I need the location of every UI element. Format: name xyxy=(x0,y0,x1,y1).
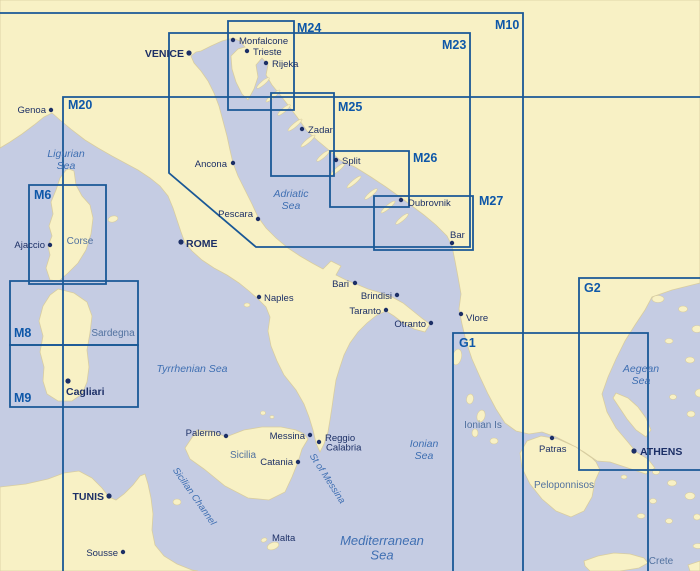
city-dot xyxy=(550,436,554,440)
city-athens: ATHENS xyxy=(631,446,682,458)
sea-label-text: Aegean xyxy=(622,363,659,375)
city-dot xyxy=(334,158,338,162)
city-dot xyxy=(296,460,300,464)
island xyxy=(652,296,664,303)
city-label: TUNIS xyxy=(73,491,105,503)
region-label-sardegna: Sardegna xyxy=(91,328,135,339)
island xyxy=(694,514,700,520)
sea-label-text: Ligurian xyxy=(47,148,85,160)
region-label-peloponnisos: Peloponnisos xyxy=(534,480,594,491)
city-label: Patras xyxy=(539,444,567,455)
sea-label-text: Mediterranean xyxy=(340,533,424,548)
city-dot xyxy=(308,433,312,437)
city-dot xyxy=(48,243,52,247)
city-label: Split xyxy=(342,156,361,167)
island xyxy=(637,514,645,519)
city-label: Calabria xyxy=(326,443,362,454)
city-label: Trieste xyxy=(253,47,282,58)
city-label: Pescara xyxy=(218,209,254,220)
sea-label-text: Sea xyxy=(632,375,651,387)
city-dot xyxy=(384,308,388,312)
city-dot xyxy=(429,321,433,325)
city-monfalcone: Monfalcone xyxy=(231,36,288,47)
city-label: Zadar xyxy=(308,125,333,136)
city-label: Catania xyxy=(260,457,293,468)
city-label: Sousse xyxy=(86,548,118,559)
city-label: Messina xyxy=(270,431,306,442)
chart-label-M10[interactable]: M10 xyxy=(495,18,519,32)
city-dot xyxy=(257,295,261,299)
city-label: Brindisi xyxy=(361,291,392,302)
chart-label-M23[interactable]: M23 xyxy=(442,38,466,52)
island xyxy=(685,493,695,500)
chart-label-M6[interactable]: M6 xyxy=(34,188,51,202)
map-canvas: M10M20M23M24M25M26M27M6M8M9G1G2 Ligurian… xyxy=(0,0,700,571)
city-dot xyxy=(264,61,268,65)
city-label: Bari xyxy=(332,279,349,290)
city-label: ROME xyxy=(186,238,218,250)
city-label: Ajaccio xyxy=(14,240,45,251)
city-label: Cagliari xyxy=(66,386,105,398)
city-dot xyxy=(395,293,399,297)
city-dot xyxy=(186,50,191,55)
city-label: Dubrovnik xyxy=(408,198,451,209)
city-dot xyxy=(317,440,321,444)
island xyxy=(666,519,673,524)
city-dot xyxy=(450,241,454,245)
city-label: Ancona xyxy=(195,159,228,170)
city-malta: Malta xyxy=(272,533,296,544)
city-dot xyxy=(631,448,636,453)
chart-label-M25[interactable]: M25 xyxy=(338,100,362,114)
region-label-corse: Corse xyxy=(67,236,94,247)
city-dot xyxy=(353,281,357,285)
island xyxy=(670,395,677,400)
city-dot xyxy=(121,550,125,554)
city-label: Otranto xyxy=(394,319,426,330)
region-label-sicilia: Sicilia xyxy=(230,450,257,461)
sea-label-text: Sea xyxy=(282,200,301,212)
city-dot xyxy=(49,108,53,112)
island xyxy=(490,438,498,444)
region-label-crete: Crete xyxy=(649,556,674,567)
chart-label-M9[interactable]: M9 xyxy=(14,391,31,405)
island xyxy=(693,544,700,549)
chart-label-M27[interactable]: M27 xyxy=(479,194,503,208)
chart-index-map: M10M20M23M24M25M26M27M6M8M9G1G2 Ligurian… xyxy=(0,0,700,571)
island xyxy=(650,499,657,504)
sea-label-text: Ionian xyxy=(410,438,439,450)
island xyxy=(270,416,274,419)
island xyxy=(668,480,677,486)
city-dot xyxy=(178,239,183,244)
city-label: ATHENS xyxy=(640,446,682,458)
city-label: Genoa xyxy=(17,105,46,116)
island xyxy=(173,499,181,505)
city-label: Taranto xyxy=(349,306,381,317)
chart-label-G2[interactable]: G2 xyxy=(584,281,601,295)
city-dot xyxy=(231,38,235,42)
city-label: Rijeka xyxy=(272,59,299,70)
chart-label-M24[interactable]: M24 xyxy=(297,21,321,35)
chart-label-G1[interactable]: G1 xyxy=(459,336,476,350)
sea-label-tyrrhenian-sea: Tyrrhenian Sea xyxy=(156,363,227,375)
island xyxy=(686,357,695,363)
city-label: Malta xyxy=(272,533,296,544)
island xyxy=(261,411,266,415)
city-label: VENICE xyxy=(145,48,184,60)
region-label-ionian-is: Ionian Is xyxy=(464,420,502,431)
island xyxy=(679,306,688,312)
city-dot xyxy=(256,217,260,221)
island xyxy=(692,326,700,333)
island xyxy=(687,411,695,417)
island xyxy=(665,339,673,344)
chart-label-M26[interactable]: M26 xyxy=(413,151,437,165)
city-dot xyxy=(399,198,403,202)
city-dot xyxy=(245,49,249,53)
city-label: Bar xyxy=(450,230,465,241)
city-dot xyxy=(300,127,304,131)
chart-label-M20[interactable]: M20 xyxy=(68,98,92,112)
city-dot xyxy=(224,434,228,438)
city-dot xyxy=(231,161,235,165)
sea-label-text: Sea xyxy=(57,160,76,172)
sea-label-text: Sea xyxy=(370,548,393,563)
island xyxy=(621,475,627,479)
city-dot xyxy=(65,378,70,383)
city-label: Palermo xyxy=(186,428,221,439)
sea-label-text: Adriatic xyxy=(272,188,309,200)
chart-label-M8[interactable]: M8 xyxy=(14,326,31,340)
city-label: Monfalcone xyxy=(239,36,288,47)
sea-label-text: Sea xyxy=(415,450,434,462)
city-dot xyxy=(106,493,111,498)
city-label: Naples xyxy=(264,293,294,304)
city-dot xyxy=(459,312,463,316)
city-label: Vlore xyxy=(466,313,488,324)
sea-label-text: Tyrrhenian Sea xyxy=(156,363,227,375)
island xyxy=(244,303,250,307)
